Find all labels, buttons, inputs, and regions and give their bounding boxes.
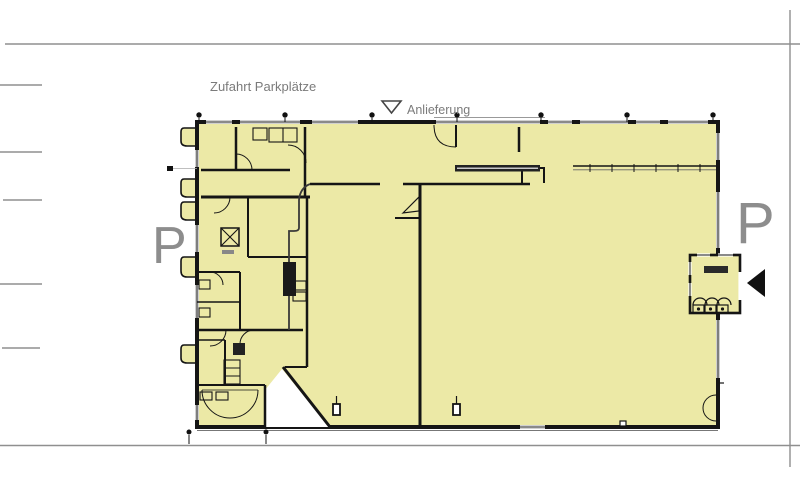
grid-marker [264, 430, 269, 445]
parking-letter-left: P [152, 217, 187, 275]
entrance-arrow-left-icon [747, 269, 765, 297]
parking-stall-lines [0, 85, 42, 348]
grid-marker [187, 430, 192, 445]
parking-letter-right: P [736, 191, 775, 256]
dark-fixture [233, 343, 245, 355]
zufahrt-parkplaetze-label: Zufahrt Parkplätze [210, 79, 316, 94]
anlieferung-label: Anlieferung [407, 103, 470, 117]
shaft-column [283, 262, 296, 296]
building [181, 118, 720, 431]
vestibule-label-block [704, 266, 728, 273]
grid-marker-left [167, 166, 197, 171]
grid-markers-bottom [187, 430, 269, 445]
floor-plan-drawing: Zufahrt Parkplätze Anlieferung P P [0, 0, 800, 500]
windows-bottom-wall [520, 425, 545, 429]
site-plan-page: Zufahrt Parkplätze Anlieferung P P [0, 0, 800, 500]
delivery-triangle-down-icon [382, 101, 401, 113]
entrance-vestibule [688, 253, 741, 313]
